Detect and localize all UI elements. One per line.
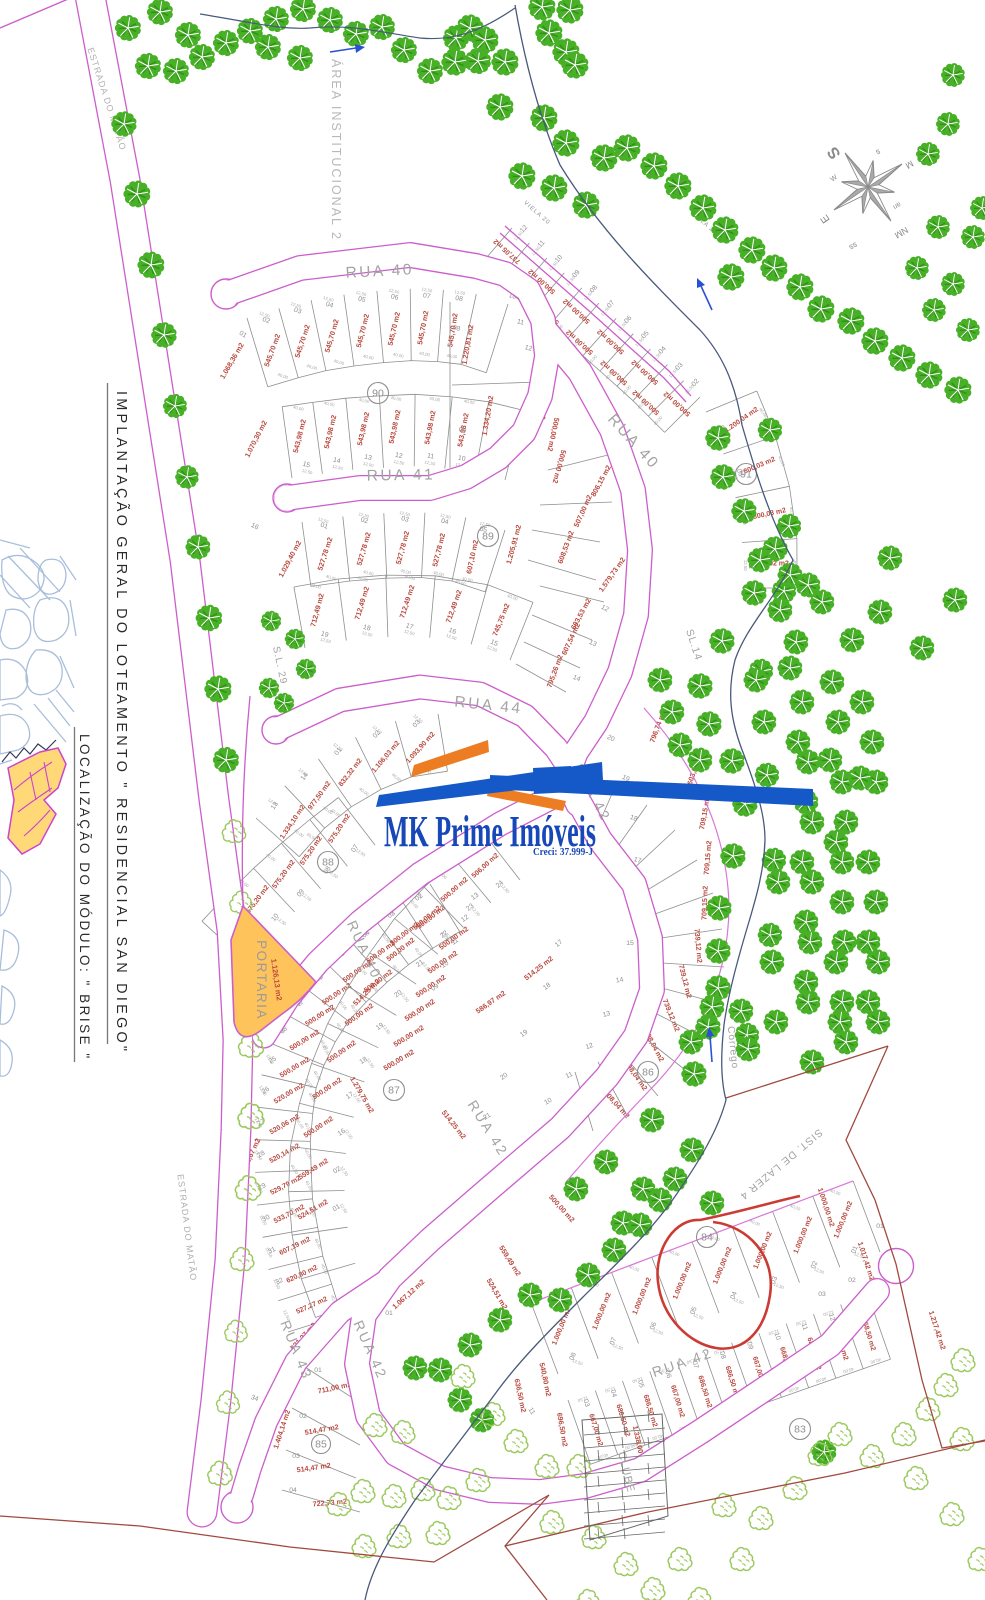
svg-text:ÁREA INSTITUCIONAL 2: ÁREA INSTITUCIONAL 2 [329, 59, 344, 241]
svg-text:03: 03 [818, 1291, 826, 1298]
svg-text:15: 15 [626, 940, 634, 947]
svg-text:Creci: 37.999-J: Creci: 37.999-J [533, 847, 593, 858]
svg-text:14: 14 [615, 976, 624, 984]
svg-text:86: 86 [642, 1067, 654, 1079]
svg-text:08: 08 [455, 295, 464, 303]
svg-text:02: 02 [299, 1413, 307, 1420]
svg-text:PORTARIA: PORTARIA [254, 940, 269, 1020]
svg-text:LOCALIZAÇÃO DO MÓDULO: " BRISE: LOCALIZAÇÃO DO MÓDULO: " BRISE " [77, 734, 92, 1061]
svg-text:85: 85 [315, 1439, 327, 1451]
svg-text:IMPLANTAÇÃO GERAL DO LOTEAMENT: IMPLANTAÇÃO GERAL DO LOTEAMENTO " RESIDE… [113, 391, 130, 1054]
svg-text:07: 07 [422, 292, 431, 300]
svg-text:91: 91 [740, 469, 752, 481]
svg-text:90: 90 [372, 388, 384, 400]
svg-text:83: 83 [794, 1424, 806, 1436]
svg-text:02: 02 [848, 1277, 856, 1284]
svg-text:87: 87 [388, 1085, 400, 1097]
svg-text:RUA 40: RUA 40 [345, 261, 414, 282]
svg-text:89: 89 [482, 531, 494, 543]
svg-text:03: 03 [292, 1453, 300, 1460]
svg-text:01: 01 [385, 1310, 393, 1317]
svg-text:10: 10 [457, 455, 466, 463]
svg-text:04: 04 [289, 1487, 297, 1494]
svg-text:88: 88 [322, 857, 334, 869]
svg-text:84: 84 [701, 1232, 713, 1244]
svg-text:RUA 41: RUA 41 [367, 466, 436, 484]
